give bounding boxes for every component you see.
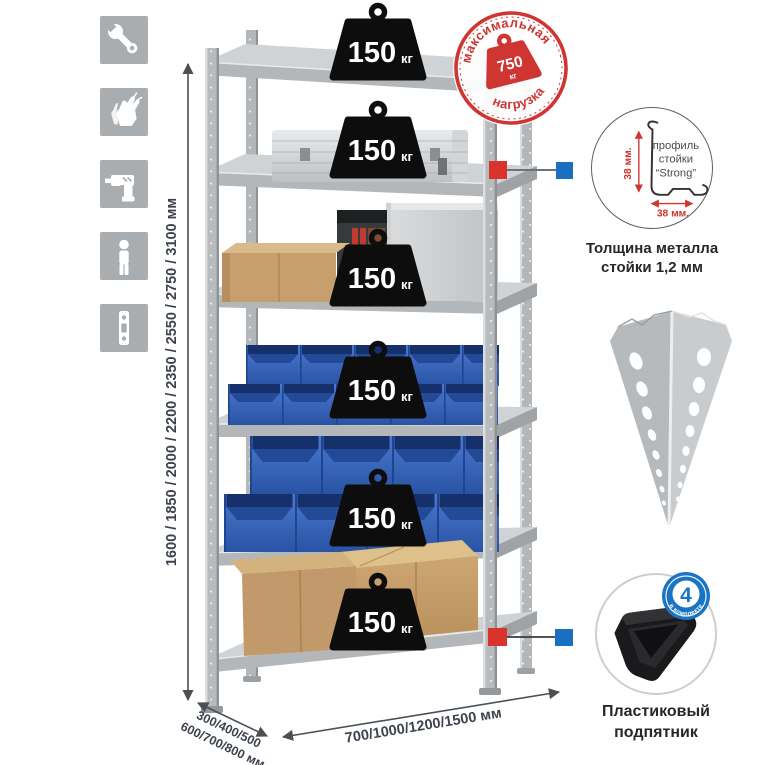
shelf-load-weight-2: 150 кг <box>326 99 430 183</box>
svg-text:150: 150 <box>348 607 396 639</box>
svg-text:кг: кг <box>401 277 414 292</box>
product-infographic: 1600 / 1850 / 2000 / 2200 / 2350 / 2550 … <box>0 0 765 765</box>
shelf-load-weight-1: 150 кг <box>326 1 430 85</box>
svg-text:кг: кг <box>401 389 414 404</box>
weight-ring-icon <box>372 344 385 357</box>
rack-foot <box>479 688 501 695</box>
plastic-foot-caption: Пластиковый подпятник <box>581 701 731 743</box>
weight-ring-icon <box>372 6 385 19</box>
svg-text:150: 150 <box>348 503 396 535</box>
svg-text:4: 4 <box>680 584 692 607</box>
svg-text:150: 150 <box>348 37 396 69</box>
weight-ring-icon <box>372 232 385 245</box>
height-dimension-label: 1600 / 1850 / 2000 / 2200 / 2350 / 2550 … <box>164 198 180 566</box>
weight-ring-icon <box>372 104 385 117</box>
svg-text:150: 150 <box>348 135 396 167</box>
width-dimension: 700/1000/1200/1500 мм <box>283 692 559 747</box>
profile-horizontal-dim: 38 мм. <box>657 208 689 219</box>
shelf-load-weight-3: 150 кг <box>326 227 430 311</box>
profile-caption: Толщина металла стойки 1,2 мм <box>577 239 727 277</box>
svg-text:кг: кг <box>401 517 414 532</box>
shelf-load-weight-4: 150 кг <box>326 339 430 423</box>
svg-text:“Strong”: “Strong” <box>656 167 697 179</box>
svg-text:150: 150 <box>348 375 396 407</box>
weight-ring-icon <box>372 576 385 589</box>
svg-text:кг: кг <box>401 149 414 164</box>
width-dimension-label: 700/1000/1200/1500 мм <box>344 705 503 746</box>
angle-post-image <box>602 303 742 535</box>
quantity-badge: 4 в комплекте <box>661 571 711 621</box>
svg-text:150: 150 <box>348 263 396 295</box>
svg-text:профиль: профиль <box>653 140 700 152</box>
depth-dimension: 300/400/500 600/700/800 мм <box>178 703 267 765</box>
height-dimension: 1600 / 1850 / 2000 / 2200 / 2350 / 2550 … <box>164 64 188 700</box>
weight-ring-icon <box>372 472 385 485</box>
rack-foot <box>517 668 535 674</box>
svg-text:кг: кг <box>401 51 414 66</box>
rack-foot <box>243 676 261 682</box>
red-marker-square <box>488 628 507 646</box>
blue-marker-square <box>555 629 573 646</box>
svg-text:кг: кг <box>401 621 414 636</box>
profile-vertical-dim: 38 мм. <box>623 147 634 179</box>
shelf-load-weight-6: 150 кг <box>326 571 430 655</box>
post-profile-detail: 38 мм. 38 мм. профиль стойки “Strong” <box>591 107 713 229</box>
svg-text:стойки: стойки <box>659 154 693 166</box>
shelf-load-weight-5: 150 кг <box>326 467 430 551</box>
blue-marker-square <box>556 162 573 179</box>
red-marker-square <box>489 161 507 179</box>
